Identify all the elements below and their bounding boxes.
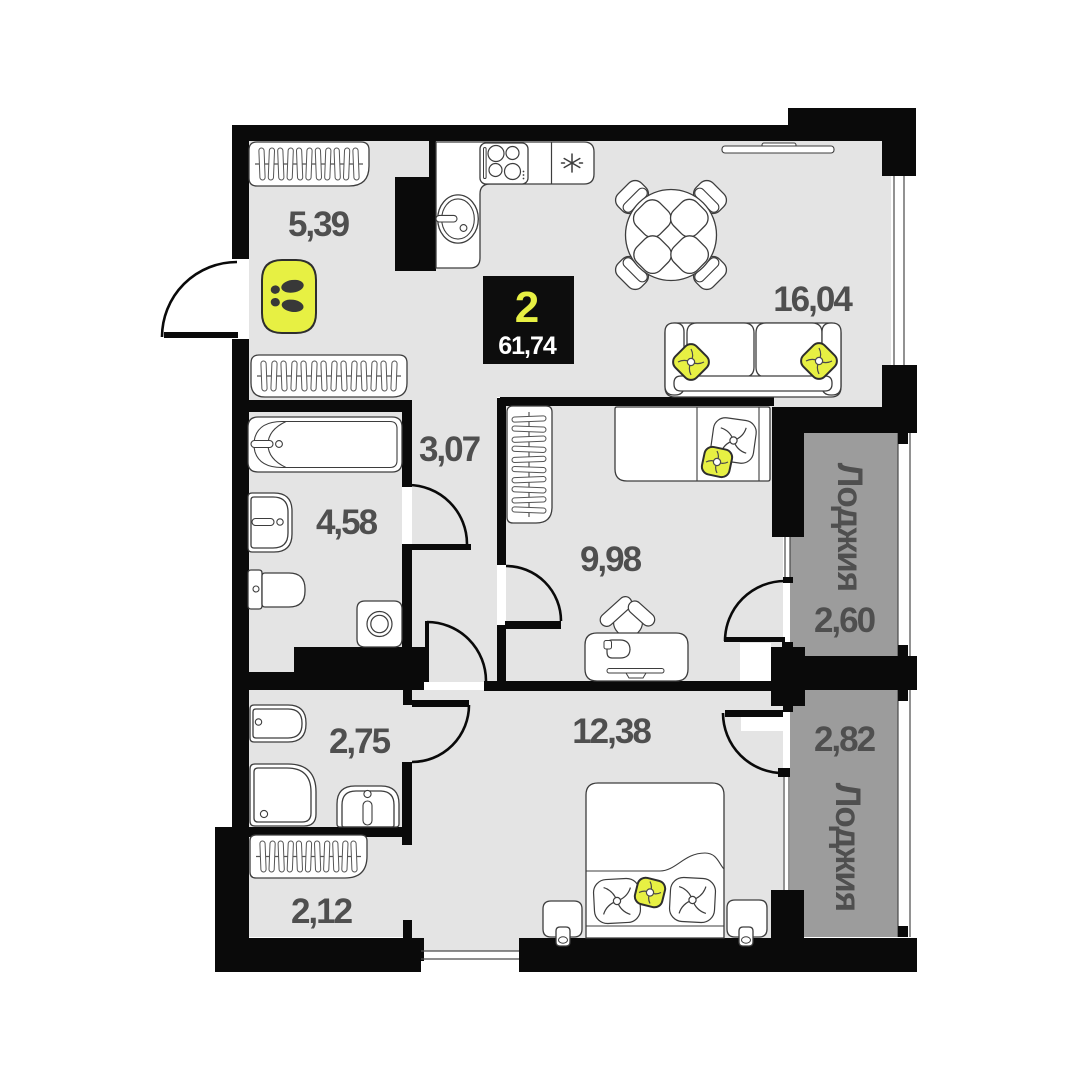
svg-text:9,98: 9,98: [580, 540, 642, 579]
svg-text:2: 2: [515, 283, 539, 332]
svg-text:61,74: 61,74: [498, 332, 557, 360]
svg-text:Лоджия: Лоджия: [830, 463, 869, 591]
svg-text:16,04: 16,04: [773, 280, 853, 319]
svg-text:3,07: 3,07: [419, 430, 480, 469]
svg-text:5,39: 5,39: [288, 205, 350, 244]
svg-text:12,38: 12,38: [572, 712, 651, 751]
svg-text:Лоджия: Лоджия: [828, 783, 867, 911]
svg-text:2,60: 2,60: [814, 601, 876, 640]
svg-text:2,82: 2,82: [814, 720, 876, 759]
svg-text:2,12: 2,12: [291, 892, 353, 931]
svg-text:2,75: 2,75: [329, 722, 391, 761]
svg-text:4,58: 4,58: [316, 503, 378, 542]
